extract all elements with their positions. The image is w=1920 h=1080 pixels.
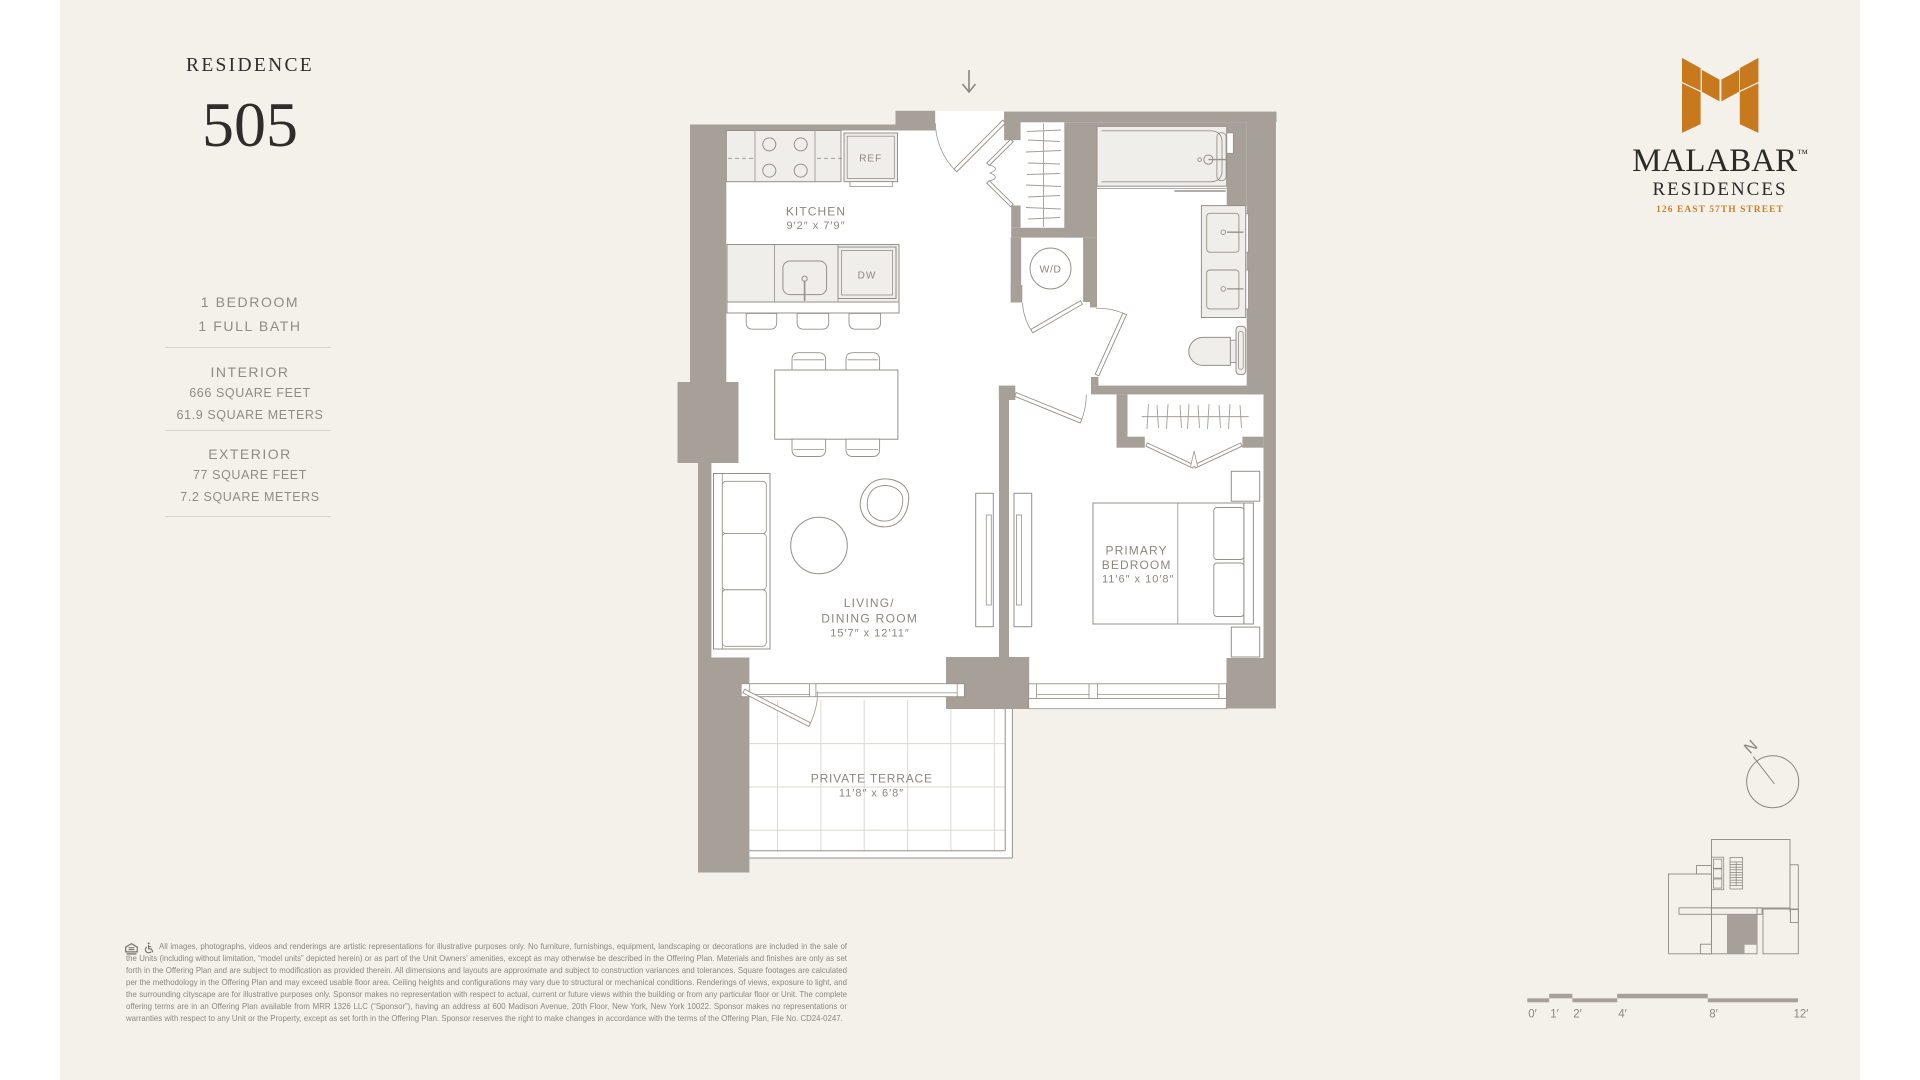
svg-text:8′: 8′	[1709, 1009, 1718, 1021]
svg-text:DW: DW	[858, 271, 877, 282]
svg-text:1′: 1′	[1550, 1009, 1559, 1021]
svg-text:REF: REF	[859, 154, 882, 165]
svg-text:PRIMARY: PRIMARY	[1106, 544, 1168, 558]
svg-text:LIVING/: LIVING/	[844, 596, 895, 610]
svg-text:KITCHEN: KITCHEN	[786, 205, 846, 219]
svg-text:0′: 0′	[1528, 1009, 1537, 1021]
svg-text:DINING ROOM: DINING ROOM	[821, 612, 918, 626]
svg-text:2′: 2′	[1573, 1009, 1582, 1021]
svg-text:12′: 12′	[1794, 1009, 1809, 1021]
svg-text:N: N	[1741, 737, 1761, 757]
svg-text:4′: 4′	[1618, 1009, 1627, 1021]
svg-text:W/D: W/D	[1040, 264, 1062, 276]
svg-text:11′6″ x 10′8″: 11′6″ x 10′8″	[1102, 573, 1174, 585]
svg-text:15′7″ x 12′11″: 15′7″ x 12′11″	[830, 628, 910, 640]
svg-text:9′2″ x 7′9″: 9′2″ x 7′9″	[787, 220, 846, 232]
svg-text:PRIVATE TERRACE: PRIVATE TERRACE	[811, 772, 933, 786]
svg-text:BEDROOM: BEDROOM	[1102, 558, 1172, 572]
svg-text:11′8″ x 6′8″: 11′8″ x 6′8″	[839, 788, 904, 800]
